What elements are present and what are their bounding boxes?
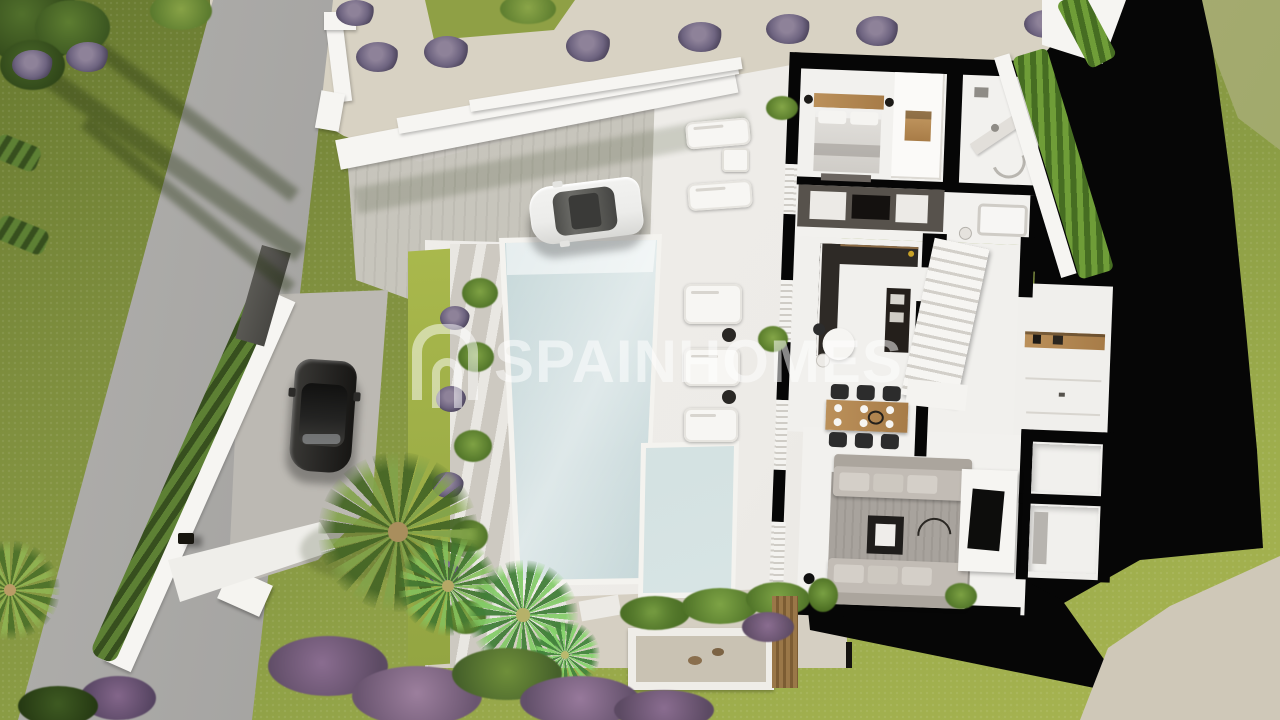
car-mirror <box>552 181 563 188</box>
lavender-bush <box>356 42 400 72</box>
wall-hall-divider <box>1019 237 1035 297</box>
lavender-bush <box>12 50 54 80</box>
sofa-cushion <box>873 474 904 493</box>
dining-chair <box>855 433 874 449</box>
lavender-bush <box>66 42 110 72</box>
bed-pillow <box>850 111 878 125</box>
lavender-bush <box>766 14 812 44</box>
sun-lounger <box>687 180 753 211</box>
dressing-unit <box>895 194 928 223</box>
lavender-bush <box>336 0 376 26</box>
lavender-bush <box>424 36 470 68</box>
louver-door <box>784 164 798 214</box>
utility-room <box>1031 444 1101 495</box>
tv-screen-living <box>967 489 1004 552</box>
flower-shrub <box>742 612 794 642</box>
lavender-bush <box>566 30 612 62</box>
louver-door <box>774 400 789 470</box>
lavender-bush <box>856 16 900 46</box>
wall-left <box>772 470 786 522</box>
car-mirror <box>560 240 571 247</box>
kitchen-unit-glass <box>890 294 904 305</box>
planter-palm <box>454 430 492 462</box>
hall-shelf-items <box>1033 335 1041 344</box>
garden-lamp-post <box>846 642 852 668</box>
terrace-plant <box>766 96 798 120</box>
sofa-cushion <box>901 567 932 586</box>
wall-lamp <box>178 533 194 544</box>
potted-tree <box>808 578 838 612</box>
spainhomes-logo-icon <box>412 324 480 400</box>
tv-screen <box>851 195 890 220</box>
sun-lounger <box>685 117 751 149</box>
sofa-cushion <box>907 475 938 494</box>
sun-lounger <box>684 284 742 324</box>
sofa-cushion <box>833 564 864 583</box>
planter-rock <box>712 648 724 656</box>
kitchen-unit-glass <box>889 312 903 323</box>
watermark-text: SPAINHOMES <box>494 332 903 392</box>
sofa-cushion <box>839 472 870 491</box>
black-car <box>288 358 358 474</box>
planter-palm <box>462 278 498 308</box>
aerial-villa-render: SPAINHOMES <box>0 0 1280 720</box>
utility-door-panel <box>1032 512 1048 564</box>
dressing-unit <box>809 191 846 220</box>
wood-slat-gate <box>772 596 798 688</box>
side-table-square <box>722 148 749 172</box>
sofa-cushion <box>867 565 898 584</box>
car-mirror <box>288 388 296 397</box>
bathtub <box>977 203 1028 237</box>
dining-chair <box>881 434 900 450</box>
wall-left <box>781 214 796 280</box>
hall-shelf-items <box>1053 335 1063 344</box>
fire-table-inner <box>875 524 896 547</box>
dining-chair <box>829 432 848 448</box>
planter-shrub-row <box>620 596 690 630</box>
car-sunroof <box>568 192 602 229</box>
hall-handle <box>1059 393 1065 397</box>
bath-fixture <box>974 87 988 98</box>
sun-lounger <box>684 408 738 442</box>
watermark: SPAINHOMES <box>412 324 903 400</box>
lavender-bush <box>678 22 724 52</box>
car-windshield-glint <box>302 434 340 444</box>
bed-blanket-fold <box>814 143 880 158</box>
wardrobe-shelf-niche <box>904 110 931 141</box>
car-mirror <box>353 392 361 401</box>
planter-rock <box>688 656 702 665</box>
bed-pillow <box>818 110 846 124</box>
wall-dining-right <box>914 401 928 456</box>
shrub-dark <box>18 686 98 720</box>
logo-inner-arch <box>432 358 462 408</box>
